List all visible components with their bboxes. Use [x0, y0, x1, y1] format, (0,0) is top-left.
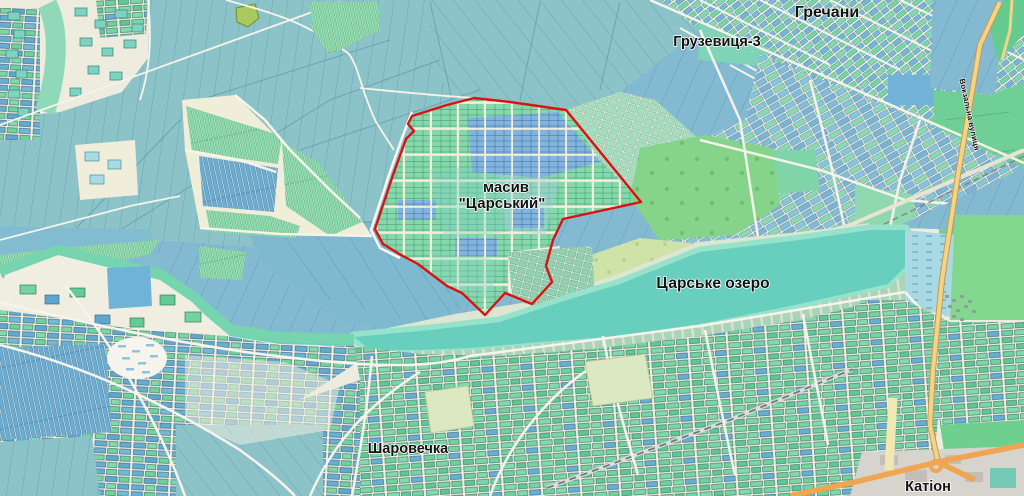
svg-text:Гречани: Гречани [795, 4, 859, 21]
svg-text:масив: масив [483, 179, 529, 196]
svg-text:Царське озеро: Царське озеро [656, 275, 769, 292]
svg-text:Шаровечка: Шаровечка [368, 441, 449, 457]
svg-text:Катіон: Катіон [905, 479, 951, 495]
svg-text:"Царський": "Царський" [459, 195, 546, 212]
svg-text:Грузевиця-3: Грузевиця-3 [673, 34, 760, 50]
